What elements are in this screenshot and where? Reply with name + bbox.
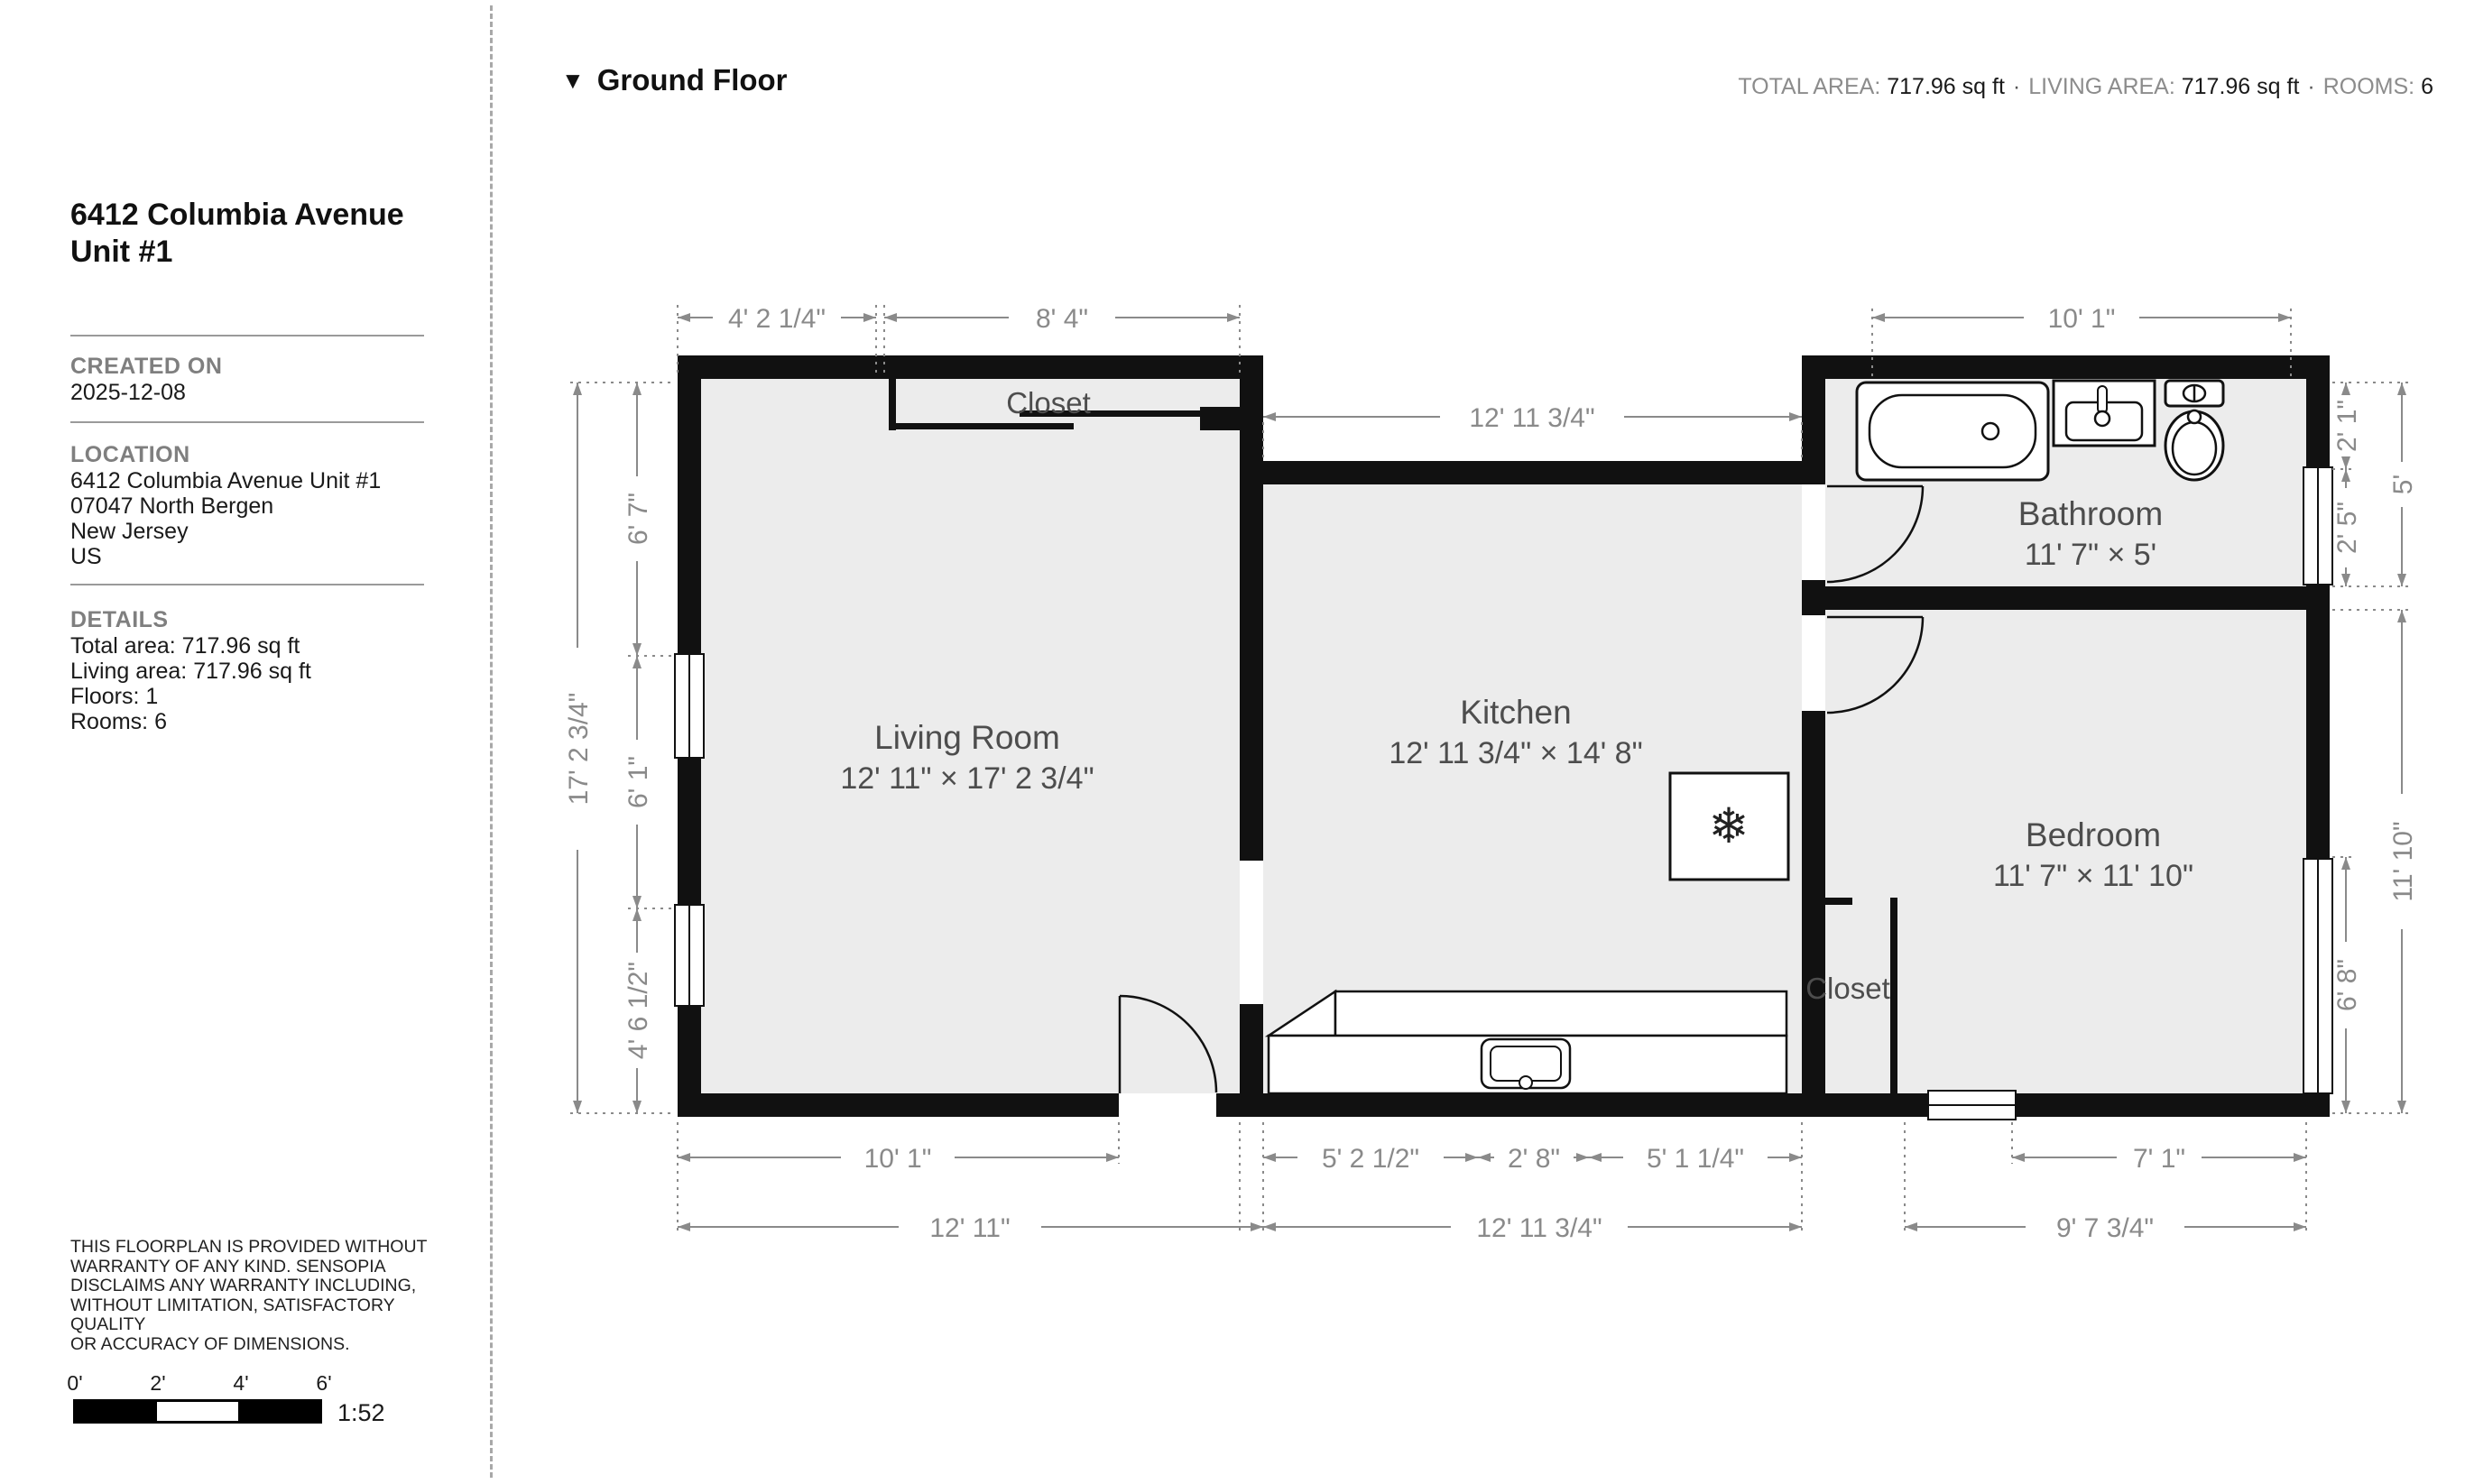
dim-label: 4' 6 1/2" xyxy=(623,962,653,1059)
dim-label: 2' 8" xyxy=(1508,1144,1560,1174)
window xyxy=(1928,1091,2016,1120)
dim-label: 5' 1 1/4" xyxy=(1647,1144,1744,1174)
dim-label: 6' 7" xyxy=(623,493,653,545)
dim-label: 12' 11" xyxy=(929,1213,1010,1243)
window xyxy=(2303,859,2332,1093)
dim-label: 10' 1" xyxy=(864,1144,932,1174)
room-name-bedroom: Bedroom xyxy=(2026,816,2161,853)
room-name-bathroom: Bathroom xyxy=(2018,495,2163,532)
dim-label: 6' 8" xyxy=(2332,959,2362,1011)
dim-label: 4' 2 1/4" xyxy=(728,304,826,334)
dim-label: 11' 10" xyxy=(2388,821,2418,901)
snowflake-icon: ❄ xyxy=(1708,799,1749,853)
counter xyxy=(1335,991,1786,1036)
dim-label: 5' xyxy=(2388,475,2418,494)
bathroom-sink xyxy=(2054,381,2155,446)
room-name-closet-top: Closet xyxy=(1006,386,1091,419)
dim-label: 8' 4" xyxy=(1036,304,1088,334)
room-size-bedroom: 11' 7" × 11' 10" xyxy=(1993,859,2193,893)
dim-label: 12' 11 3/4" xyxy=(1469,403,1594,433)
room-size-kitchen: 12' 11 3/4" × 14' 8" xyxy=(1389,736,1642,770)
dim-label: 2' 5" xyxy=(2332,502,2362,554)
window xyxy=(2303,467,2332,585)
room-name-living-room: Living Room xyxy=(874,719,1060,756)
dim-label: 12' 11 3/4" xyxy=(1476,1213,1602,1243)
room-name-closet-bedroom: Closet xyxy=(1805,972,1890,1005)
dim-label: 7' 1" xyxy=(2133,1144,2185,1174)
dim-label: 2' 1" xyxy=(2332,400,2362,452)
dim-label: 17' 2 3/4" xyxy=(564,693,594,806)
dim-label: 5' 2 1/2" xyxy=(1322,1144,1419,1174)
window xyxy=(675,654,704,758)
dim-label: 6' 1" xyxy=(623,756,653,808)
bathtub xyxy=(1857,383,2048,480)
toilet xyxy=(2165,381,2223,480)
room-size-living-room: 12' 11" × 17' 2 3/4" xyxy=(840,761,1094,796)
room-size-bathroom: 11' 7" × 5' xyxy=(2025,538,2156,572)
window xyxy=(675,905,704,1006)
floor-plan: ❄ xyxy=(0,0,2465,1484)
refrigerator: ❄ xyxy=(1670,773,1788,880)
kitchen-sink xyxy=(1482,1039,1570,1089)
dim-label: 10' 1" xyxy=(2048,304,2116,334)
room-name-kitchen: Kitchen xyxy=(1460,694,1571,731)
dim-label: 9' 7 3/4" xyxy=(2056,1213,2154,1243)
